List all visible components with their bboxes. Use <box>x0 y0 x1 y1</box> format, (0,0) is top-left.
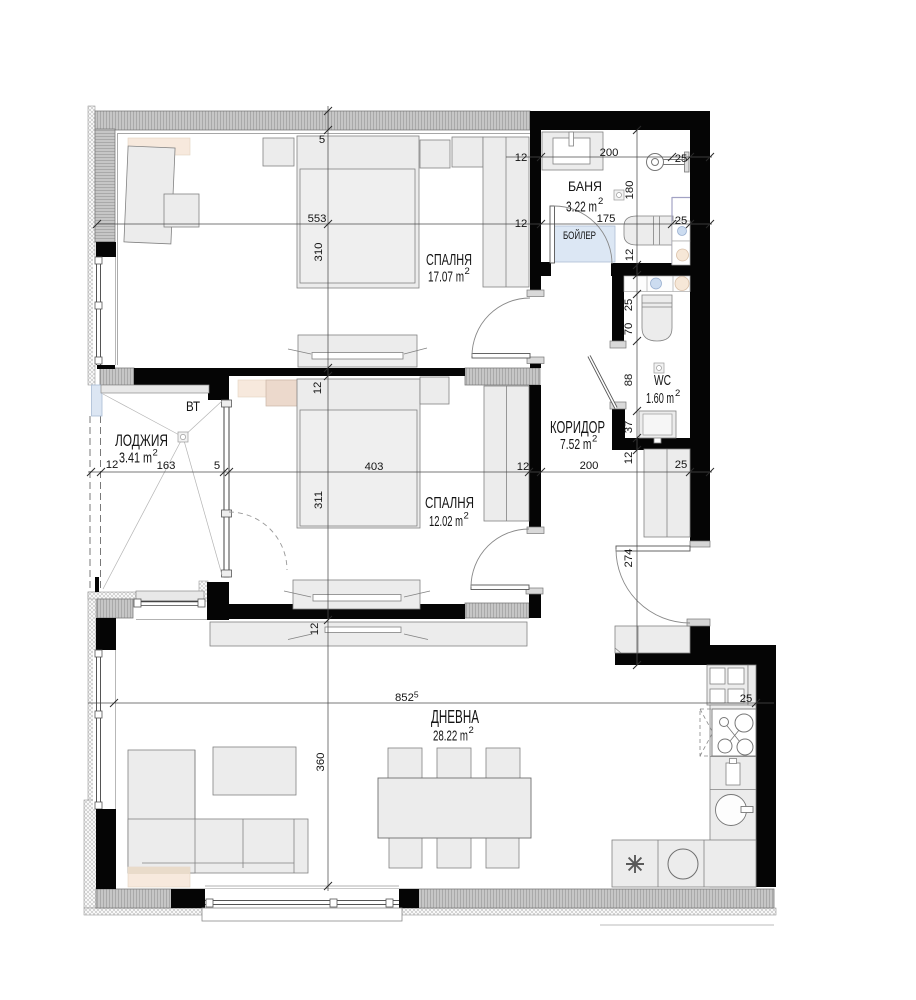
svg-text:163: 163 <box>157 460 176 472</box>
svg-text:WC: WC <box>654 372 671 389</box>
svg-text:2: 2 <box>153 448 158 459</box>
svg-text:274: 274 <box>623 549 635 568</box>
svg-text:12: 12 <box>515 218 528 230</box>
svg-text:37: 37 <box>623 421 635 434</box>
svg-text:311: 311 <box>313 491 325 509</box>
svg-text:2: 2 <box>465 266 470 277</box>
svg-text:28.22 m: 28.22 m <box>433 729 468 745</box>
svg-text:ВТ: ВТ <box>186 398 200 414</box>
svg-text:СПАЛНЯ: СПАЛНЯ <box>425 495 474 512</box>
svg-text:25: 25 <box>675 215 688 227</box>
svg-text:553: 553 <box>308 213 327 225</box>
svg-text:25: 25 <box>623 299 635 312</box>
svg-text:2: 2 <box>592 434 597 445</box>
svg-text:17.07 m: 17.07 m <box>428 270 464 286</box>
svg-text:7.52 m: 7.52 m <box>560 437 592 453</box>
svg-text:2: 2 <box>464 511 469 522</box>
svg-text:25: 25 <box>740 693 753 705</box>
svg-text:12: 12 <box>517 461 530 473</box>
svg-text:88: 88 <box>623 374 635 387</box>
svg-text:200: 200 <box>600 147 619 159</box>
svg-text:5: 5 <box>214 460 220 472</box>
svg-text:200: 200 <box>580 460 599 472</box>
svg-text:3.22 m: 3.22 m <box>566 200 597 216</box>
svg-text:ЛОДЖИЯ: ЛОДЖИЯ <box>115 432 168 450</box>
svg-text:БОЙЛЕР: БОЙЛЕР <box>563 229 596 242</box>
svg-text:2: 2 <box>675 388 680 399</box>
svg-text:3.41 m: 3.41 m <box>119 451 152 467</box>
svg-text:12: 12 <box>106 459 119 471</box>
svg-text:25: 25 <box>675 459 688 471</box>
svg-text:70: 70 <box>623 323 635 336</box>
svg-text:310: 310 <box>313 243 325 262</box>
svg-text:12.02 m: 12.02 m <box>429 514 463 530</box>
svg-text:175: 175 <box>597 213 616 225</box>
svg-text:5: 5 <box>319 134 325 146</box>
svg-text:403: 403 <box>365 461 384 473</box>
svg-text:12: 12 <box>623 452 635 465</box>
svg-text:12: 12 <box>309 623 321 636</box>
svg-text:360: 360 <box>315 753 327 772</box>
svg-text:12: 12 <box>312 382 324 395</box>
svg-text:180: 180 <box>624 181 636 200</box>
svg-text:2: 2 <box>469 725 474 736</box>
svg-text:12: 12 <box>624 249 636 262</box>
svg-text:2: 2 <box>598 196 603 207</box>
svg-text:ДНЕВНА: ДНЕВНА <box>431 707 479 727</box>
svg-text:БАНЯ: БАНЯ <box>568 179 602 194</box>
svg-text:12: 12 <box>515 152 528 164</box>
svg-text:25: 25 <box>675 153 688 165</box>
svg-text:1.60 m: 1.60 m <box>646 391 674 407</box>
